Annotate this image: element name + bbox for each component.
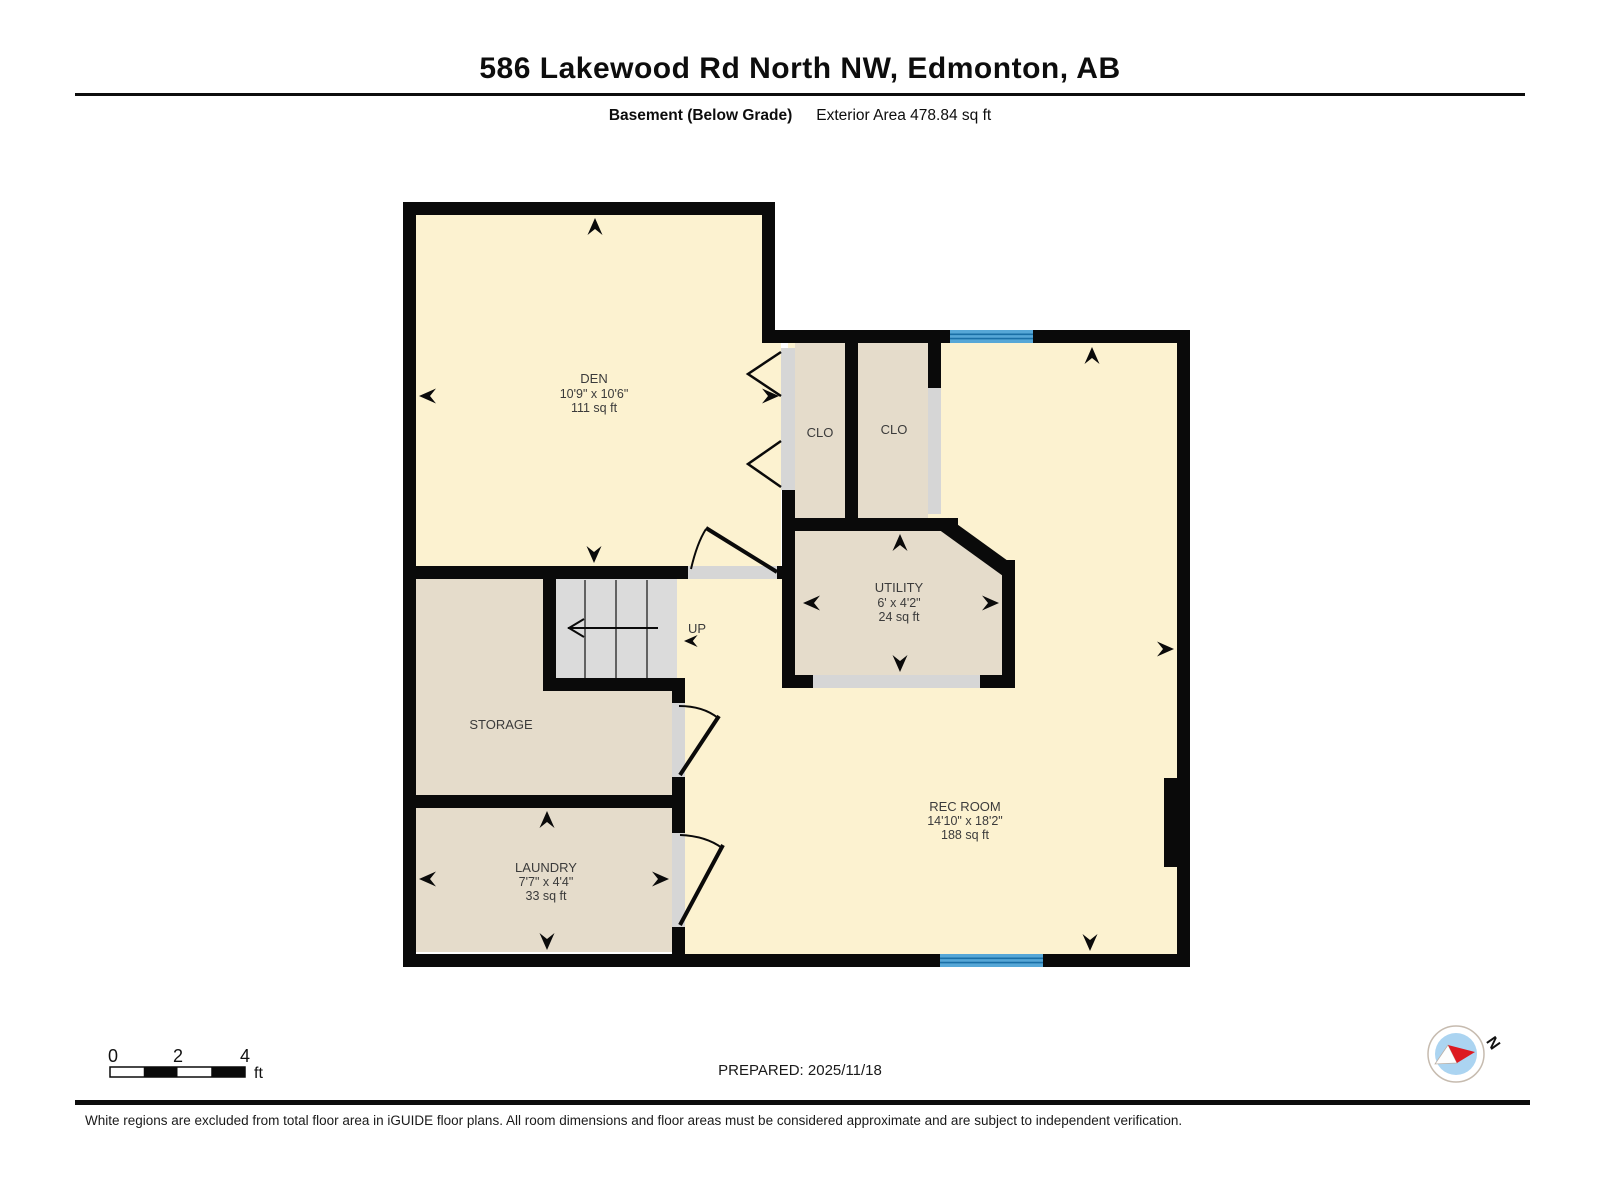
laundry-area: 33 sq ft: [526, 889, 568, 903]
scale-unit: ft: [254, 1065, 263, 1082]
staircase: [556, 579, 677, 678]
wall-stairs-bottom: [543, 678, 685, 691]
rec-room-dims: 14'10" x 18'2": [927, 814, 1003, 828]
scale-tick-2: 2: [173, 1046, 183, 1066]
window-top: [950, 330, 1033, 343]
footer-divider: [75, 1100, 1530, 1105]
scale-bar: 0 2 4 ft: [108, 1046, 263, 1082]
utility-name: UTILITY: [875, 580, 924, 595]
utility-door-opening: [813, 675, 980, 688]
prepared-date: PREPARED: 2025/11/18: [718, 1062, 882, 1079]
rec-room-name: REC ROOM: [929, 799, 1001, 814]
wall-storage-laundry-divider: [410, 795, 685, 808]
scale-bar-segment: [211, 1067, 245, 1077]
den-area: 111 sq ft: [571, 401, 618, 415]
closet-left-name: CLO: [807, 425, 834, 440]
wall-utility-east: [1002, 560, 1015, 688]
floorplan-canvas: DEN 10'9" x 10'6" 111 sq ft CLO CLO UTIL…: [0, 0, 1600, 1200]
wall-closet-bottom: [782, 518, 958, 531]
closet-right-door-opening: [928, 388, 941, 514]
den-name: DEN: [580, 371, 607, 386]
scale-bar-segment: [144, 1067, 178, 1077]
laundry-name: LAUNDRY: [515, 860, 577, 875]
utility-area: 24 sq ft: [879, 610, 921, 624]
laundry-door-opening: [672, 833, 685, 927]
utility-dims: 6' x 4'2": [877, 596, 920, 610]
wall-bottom: [403, 954, 1190, 967]
wall-right-bump: [1164, 778, 1177, 867]
den-dims: 10'9" x 10'6": [560, 387, 629, 401]
window-bottom: [940, 954, 1043, 967]
wall-den-top: [403, 202, 775, 215]
storage-door-opening: [672, 703, 685, 777]
compass: N: [1428, 1026, 1503, 1082]
wall-left: [403, 202, 416, 967]
wall-closet-divider: [845, 343, 858, 518]
den-door-opening: [688, 566, 777, 579]
closet-right-name: CLO: [881, 422, 908, 437]
laundry-dims: 7'7" x 4'4": [519, 875, 574, 889]
floor-fills: [416, 215, 1177, 954]
scale-tick-0: 0: [108, 1046, 118, 1066]
compass-north-label: N: [1482, 1034, 1503, 1053]
floorplan-page: { "header": { "title": "586 Lakewood Rd …: [0, 0, 1600, 1200]
stairs-up-label: UP: [688, 621, 706, 636]
wall-right: [1177, 330, 1190, 967]
wall-closet-right-east: [928, 343, 941, 390]
closet-left-door-opening: [781, 348, 795, 490]
scale-tick-4: 4: [240, 1046, 250, 1066]
wall-den-right: [762, 202, 775, 343]
wall-stairs-left: [543, 579, 556, 691]
storage-name: STORAGE: [469, 717, 533, 732]
disclaimer-text: White regions are excluded from total fl…: [85, 1113, 1182, 1128]
wall-den-bottom: [416, 566, 688, 579]
rec-room-area: 188 sq ft: [941, 828, 989, 842]
